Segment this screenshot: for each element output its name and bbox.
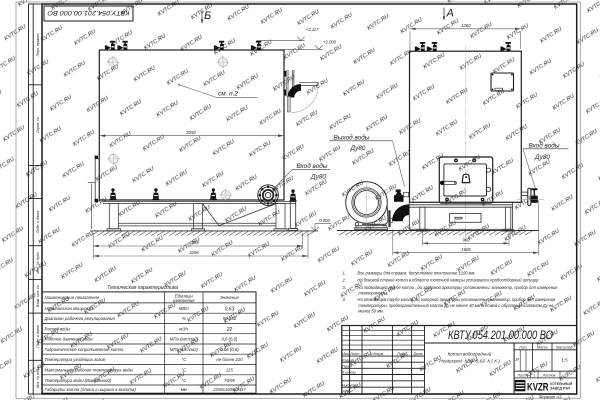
svg-text:Габариты котла (длина х ширина: Габариты котла (длина х ширина х высота) <box>45 387 137 392</box>
svg-text:КВТУ.054.201.00.000 ВО: КВТУ.054.201.00.000 ВО <box>448 330 553 342</box>
svg-text:Утв.: Утв. <box>342 389 350 393</box>
svg-text:м3/ч: м3/ч <box>179 327 189 332</box>
svg-text:Инв. № подл.: Инв. № подл. <box>36 366 40 388</box>
svg-text:Котел водогрейный: Котел водогрейный <box>448 350 492 356</box>
svg-text:Пров.: Пров. <box>342 364 351 368</box>
svg-text:На отводящей трубе котла ,до з: На отводящей трубе котла ,до запорной ар… <box>357 297 556 302</box>
svg-text:измерения: измерения <box>173 298 195 303</box>
svg-text:Н.контр.: Н.контр. <box>342 383 357 387</box>
svg-text:Номинальная мощность: Номинальная мощность <box>45 306 96 311</box>
svg-text:4.: 4. <box>343 297 346 302</box>
svg-text:Наименование показателя: Наименование показателя <box>45 295 101 300</box>
svg-text:На подводящей трубе котла ,: На подводящей трубе котла , до запорной … <box>357 285 558 290</box>
svg-text:Вход воды: Вход воды <box>528 141 559 149</box>
svg-text:960: 960 <box>463 238 471 243</box>
svg-text:МВт: МВт <box>179 306 189 311</box>
svg-text:ЗАВОД РЭП: ЗАВОД РЭП <box>550 387 571 391</box>
svg-text:КВТУ.054.201.00.000 ВО: КВТУ.054.201.00.000 ВО <box>47 9 130 16</box>
svg-text:Справ. №: Справ. № <box>36 117 40 133</box>
svg-text:Значение: Значение <box>220 295 239 300</box>
svg-text:KVZR: KVZR <box>527 381 549 393</box>
svg-text:Взам. инв. №: Взам. инв. № <box>36 285 40 307</box>
svg-text:Масса: Масса <box>537 345 547 349</box>
svg-text:Масштаб: Масштаб <box>556 345 573 349</box>
svg-text:22: 22 <box>226 327 233 333</box>
svg-text:3.: 3. <box>343 285 346 290</box>
svg-text:+2.000: +2.000 <box>323 39 337 44</box>
svg-text:Инв. № дубл.: Инв. № дубл. <box>36 251 40 273</box>
svg-text:1260: 1260 <box>461 23 471 28</box>
svg-text:Подп.: Подп. <box>397 352 406 356</box>
svg-text:Лист: Лист <box>516 373 526 377</box>
svg-text:КОТЕЛЬНЫЙ: КОТЕЛЬНЫЙ <box>550 382 573 386</box>
svg-text:Расход воды: Расход воды <box>45 327 71 332</box>
svg-text:Heatexpert- КВр -0,63- К ( К ): Heatexpert- КВр -0,63- К ( К ) <box>439 358 500 363</box>
svg-text:0,63: 0,63 <box>225 306 235 312</box>
svg-text:1.: 1. <box>343 270 346 275</box>
svg-text:Гидравлическое сопротивление к: Гидравлическое сопротивление котла <box>45 347 125 352</box>
svg-text:Перв. примен.: Перв. примен. <box>36 33 40 57</box>
svg-text:Формат А3: Формат А3 <box>539 395 562 400</box>
svg-text:115: 115 <box>226 368 233 373</box>
svg-text:Изм.: Изм. <box>342 352 349 356</box>
svg-text:МПа (кгс/см2): МПа (кгс/см2) <box>170 337 199 342</box>
svg-text:Температура воды (Вход/Выход): Температура воды (Вход/Выход) <box>45 378 112 383</box>
svg-text:см. п.2: см. п.2 <box>218 90 238 97</box>
svg-text:А: А <box>446 8 454 20</box>
svg-text:2: 2 <box>566 373 569 377</box>
svg-text:Подп. и дата: Подп. и дата <box>36 325 40 348</box>
svg-text:Все размеры для справок, допус: Все размеры для справок, допустимое откл… <box>357 270 475 275</box>
svg-text:Б: Б <box>204 10 211 22</box>
svg-text:1605: 1605 <box>461 247 471 252</box>
svg-text:2.: 2. <box>342 277 346 282</box>
svg-text:+2.117: +2.117 <box>306 27 319 32</box>
svg-text:1: 1 <box>533 373 535 377</box>
svg-text:1:5: 1:5 <box>561 358 568 363</box>
svg-text:N докум.: N докум. <box>370 352 384 356</box>
svg-text:0,06 (0,6): 0,06 (0,6) <box>220 347 239 352</box>
svg-text:Выход воды: Выход воды <box>334 133 370 141</box>
svg-text:На боковой стенке котла в обла: На боковой стенке котла в области топочн… <box>357 277 539 282</box>
svg-text:Дата: Дата <box>412 352 422 356</box>
svg-text:Техническая характеристика: Техническая характеристика <box>107 285 178 291</box>
svg-text:2050: 2050 <box>185 130 196 135</box>
svg-text:70/95: 70/95 <box>224 378 235 383</box>
svg-text:Максимальная рабочая температу: Максимальная рабочая температура воды <box>45 368 134 373</box>
svg-text:Ду80: Ду80 <box>310 174 326 181</box>
svg-text:Ду80: Ду80 <box>534 154 550 161</box>
svg-text:0.000: 0.000 <box>319 218 330 223</box>
svg-text:температуры.: температуры. <box>358 291 387 296</box>
svg-text:Разраб.: Разраб. <box>342 358 355 362</box>
svg-text:не более 220: не более 220 <box>216 357 243 362</box>
svg-text:Вход воды: Вход воды <box>296 162 327 170</box>
svg-text:менее 50 мм.: менее 50 мм. <box>358 309 383 314</box>
svg-text:2205: 2205 <box>188 240 199 245</box>
svg-text:температуры, предохранительный: температуры, предохранительный клапан Ду… <box>358 303 554 308</box>
svg-text:Температура уходящих газов: Температура уходящих газов <box>45 357 106 362</box>
svg-text:Рабочее давление воды: Рабочее давление воды <box>45 337 94 342</box>
svg-text:%: % <box>182 316 186 321</box>
svg-text:Лист: Лист <box>349 352 359 356</box>
svg-text:2296: 2296 <box>188 250 199 255</box>
svg-text:2296х1605х2117: 2296х1605х2117 <box>212 387 246 392</box>
svg-text:Подп. и дата: Подп. и дата <box>36 211 40 234</box>
svg-text:Ду80: Ду80 <box>350 145 366 152</box>
svg-text:мм: мм <box>181 387 187 392</box>
svg-text:Листов: Листов <box>542 373 556 377</box>
svg-text:0,6 (6,0): 0,6 (6,0) <box>221 337 238 342</box>
svg-text:МПа (кгс/см2): МПа (кгс/см2) <box>170 347 199 352</box>
svg-text:Лит.: Лит. <box>518 345 527 349</box>
svg-text:50-100: 50-100 <box>223 316 237 321</box>
svg-text:Т.контр.: Т.контр. <box>342 371 356 375</box>
svg-text:Диапазон рабочего регулировани: Диапазон рабочего регулирования <box>44 316 116 321</box>
